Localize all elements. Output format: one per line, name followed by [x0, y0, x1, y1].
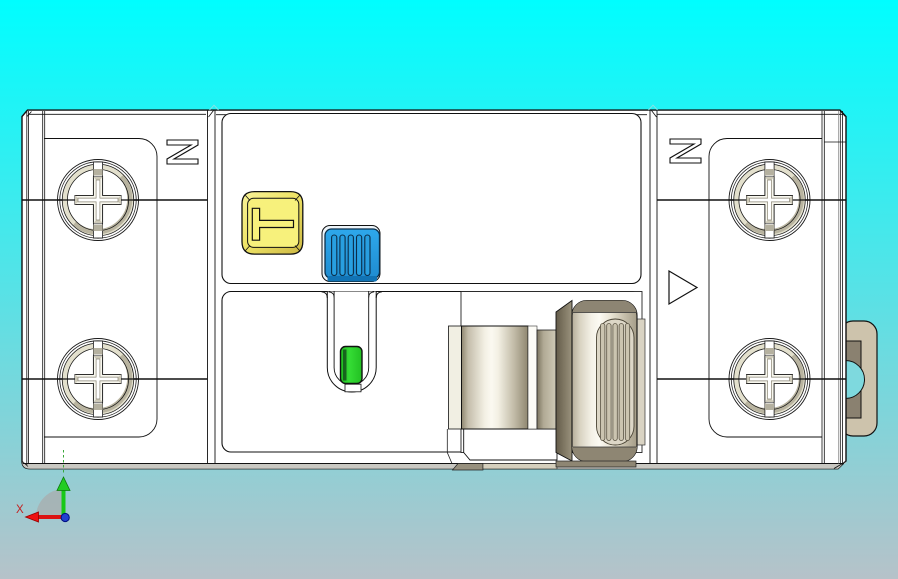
- svg-text:X: X: [16, 504, 24, 516]
